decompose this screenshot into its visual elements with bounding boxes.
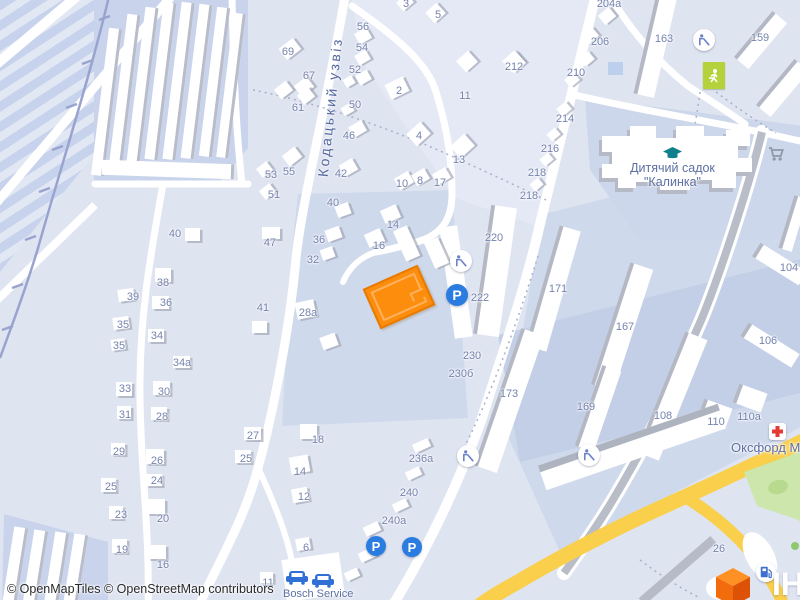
house-number-label: 56 [357,21,369,33]
map-canvas[interactable]: 69676155535156545250464240363228а3521141… [0,0,800,600]
parking-icon[interactable]: P [366,536,386,556]
house-number-label: 218 [528,167,546,179]
house-number-label: 108 [654,410,672,422]
house-number-label: 12 [298,491,310,503]
playground-icon[interactable] [450,250,472,272]
house-number-label: 171 [549,283,567,295]
house-number-label: 216 [541,143,559,155]
house-number-label: 106 [759,335,777,347]
house-number-label: 13 [453,154,465,166]
parking-icon[interactable]: P [402,537,422,557]
house-number-label: 67 [303,70,315,82]
house-number-label: 212 [505,61,523,73]
sports-field-icon[interactable] [703,62,725,89]
slide-icon [461,449,476,464]
red-cross-icon [772,426,783,437]
house-number-label: 51 [268,189,280,201]
house-number-label: 25 [105,481,117,493]
graduation-cap-icon [663,147,682,161]
house-number-label: 24 [151,475,163,487]
slide-icon [582,448,597,463]
house [147,499,165,514]
house-number-label: 206 [591,36,609,48]
house-number-label: 28а [299,307,317,319]
house [185,228,200,241]
house-number-label: 54 [356,42,368,54]
slide-icon [697,33,712,48]
house-number-label: 16 [157,559,169,571]
house-number-label: 240 [400,487,418,499]
house-number-label: 19 [116,544,128,556]
house-number-label: 163 [655,33,673,45]
house-number-label: 30 [158,386,170,398]
house-number-label: 28 [156,411,168,423]
house-number-label: 26 [713,543,725,555]
house-number-label: 210 [567,67,585,79]
house-number-label: 34 [151,330,163,342]
house-number-label: 14 [294,466,306,478]
car-glyph-icon [285,570,309,585]
house-number-label: 42 [335,168,347,180]
slide-icon [454,254,469,269]
house-number-label: 159 [751,32,769,44]
house-number-label: 35 [117,319,129,331]
house-number-label: 230 [463,350,481,362]
medical-icon[interactable] [769,423,786,440]
house-number-label: 34а [173,357,191,369]
house-number-label: 110 [707,416,725,428]
house-number-label: 6 [303,542,309,554]
house-number-label: 53 [265,169,277,181]
map-attribution: © OpenMapTiles © OpenStreetMap contribut… [7,582,274,596]
water-feature [608,62,623,75]
house-number-label: 40 [169,228,181,240]
car-icon[interactable] [311,573,335,593]
house-number-label: 5 [435,9,441,21]
house-number-label: 69 [282,46,294,58]
house-number-label: 4 [416,130,422,142]
house-number-label: 10 [396,178,408,190]
house-number-label: 26 [151,455,163,467]
school-icon[interactable] [663,147,682,166]
runner-icon [707,68,721,84]
house-number-label: 25 [240,453,252,465]
house-number-label: 38 [157,277,169,289]
house-number-label: 29 [113,446,125,458]
house-number-label: 33 [119,383,131,395]
shopping-cart-icon[interactable] [768,146,785,167]
car-glyph-icon [311,573,335,588]
house-number-label: 222 [471,292,489,304]
house [252,321,267,333]
house-number-label: 14 [387,219,399,231]
playground-icon[interactable] [457,445,479,467]
house-number-label: 11 [459,90,470,102]
house-number-label: 2 [396,85,402,97]
house-number-label: 169 [577,401,595,413]
house-number-label: 46 [343,130,355,142]
house-number-label: 32 [307,254,319,266]
house-number-label: 18 [312,434,324,446]
house-number-label: 36 [313,234,325,246]
house-number-label: 16 [373,240,385,252]
house-number-label: 27 [247,430,259,442]
playground-icon[interactable] [578,444,600,466]
parking-icon[interactable]: P [446,284,468,306]
house-number-label: 104 [780,262,798,274]
house-number-label: 39 [127,291,139,303]
brand-cube-logo [716,568,750,600]
brand-watermark-text: ІН [772,566,800,600]
house-number-label: 173 [500,388,518,400]
house-number-label: 23 [115,509,127,521]
house-number-label: 167 [616,321,634,333]
car-icon[interactable] [285,570,309,590]
cart-icon [768,146,785,162]
house-number-label: 35 [113,340,125,352]
house-number-label: 61 [292,102,304,114]
medical-center-label: Оксфорд Мед [731,440,800,455]
fuel-pump-icon [759,565,773,579]
house-number-label: 31 [119,409,131,421]
house-number-label: 230б [449,368,474,380]
house-number-label: 204а [597,0,621,10]
house-number-label: 8 [417,175,423,187]
house-number-label: 55 [283,166,295,178]
house-number-label: 40 [327,197,339,209]
house-number-label: 20 [157,513,169,525]
house-number-label: 220 [485,232,503,244]
house-number-label: 3 [403,0,409,10]
house [148,545,166,559]
house-number-label: 50 [349,99,361,111]
house-number-label: 47 [264,237,276,249]
house-number-label: 41 [257,302,269,314]
house-number-label: 236а [409,453,433,465]
playground-icon[interactable] [693,29,715,51]
house-number-label: 218 [520,190,538,202]
house-number-label: 36 [160,297,172,309]
house-number-label: 52 [349,64,361,76]
house-number-label: 214 [556,113,574,125]
house-number-label: 240а [382,515,406,527]
house-number-label: 110а [737,411,761,423]
house-number-label: 17 [434,177,446,189]
